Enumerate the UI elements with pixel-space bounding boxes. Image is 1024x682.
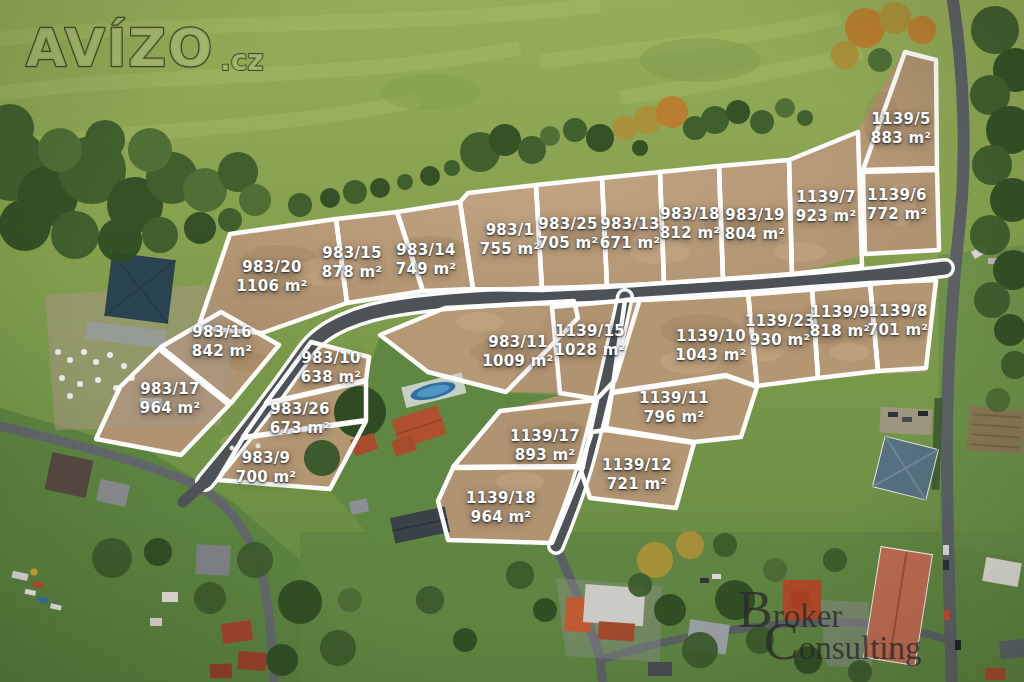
excavator xyxy=(31,569,38,576)
terrain-graphic xyxy=(0,0,1024,682)
aerial-plot-map: 983/201106 m²983/15878 m²983/14749 m²983… xyxy=(0,0,1024,682)
teal-roof-house xyxy=(104,252,175,323)
garden-rows xyxy=(967,406,1024,454)
